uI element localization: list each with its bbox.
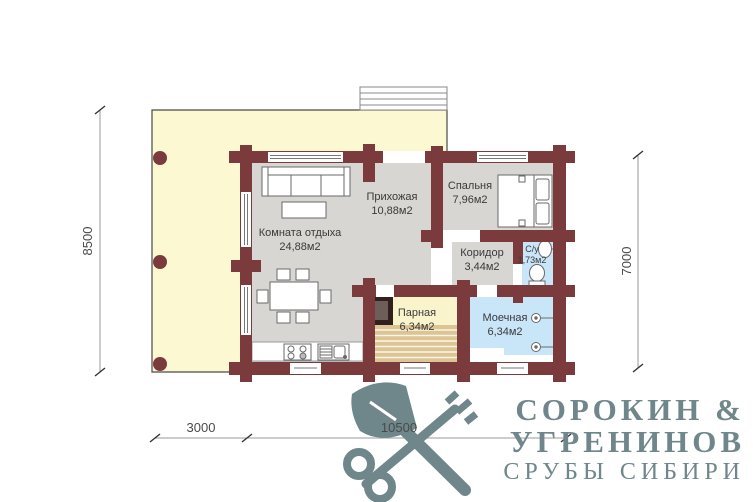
room-label-washing: Моечная 6,34м2: [462, 312, 548, 339]
room-label-bedroom: Спальня 7,96м2: [425, 180, 515, 207]
washroom-door-gap: [477, 285, 497, 297]
room-label-wc: С/у 1,73м2: [514, 244, 550, 266]
kitchen-sink-icon: [318, 344, 349, 360]
room-area: 1,73м2: [514, 255, 550, 266]
kitchen-stove-icon: [284, 344, 311, 360]
entrance-door-gap: [383, 151, 425, 163]
room-label-living: Комната отдыха 24,88м2: [240, 227, 360, 254]
window-icon: [268, 152, 343, 162]
sauna-door-gap: [376, 285, 394, 297]
room-name: Парная: [376, 307, 458, 321]
floor-plan-page: Комната отдыха 24,88м2 Прихожая 10,88м2 …: [0, 0, 753, 502]
room-name: Прихожая: [347, 191, 437, 205]
room-label-steam: Парная 6,34м2: [376, 307, 458, 334]
kitchen-counter-icon: [252, 342, 363, 361]
dimension-label-8500: 8500: [80, 211, 96, 271]
window-icon: [400, 363, 430, 374]
room-name: С/у: [514, 244, 550, 255]
room-area: 6,34м2: [462, 326, 548, 340]
room-area: 6,34м2: [376, 321, 458, 335]
sofa-icon: [262, 167, 350, 196]
window-icon: [241, 285, 251, 335]
window-icon: [290, 363, 321, 374]
window-icon: [477, 152, 528, 162]
window-icon: [497, 363, 528, 374]
logo-text-line1: СОРОКИН &: [515, 392, 745, 428]
room-area: 7,96м2: [425, 194, 515, 208]
room-area: 10,88м2: [347, 205, 437, 219]
coffee-table-icon: [282, 202, 326, 218]
room-label-hallway: Прихожая 10,88м2: [347, 191, 437, 218]
room-area: 24,88м2: [240, 241, 360, 255]
logo-text-line2: УГРЕНИНОВ: [510, 424, 745, 460]
logo-text-line3: СРУБЫ СИБИРИ: [503, 459, 745, 486]
dimension-label-7000: 7000: [619, 231, 635, 291]
toilet-icon: [529, 265, 545, 287]
room-name: Моечная: [462, 312, 548, 326]
dimension-label-10500: 10500: [366, 420, 432, 436]
dimension-label-3000: 3000: [171, 420, 231, 436]
axe-and-key-logo-icon: [347, 382, 476, 499]
room-name: Комната отдыха: [240, 227, 360, 241]
room-name: Спальня: [425, 180, 515, 194]
entrance-steps-icon: [360, 87, 447, 110]
